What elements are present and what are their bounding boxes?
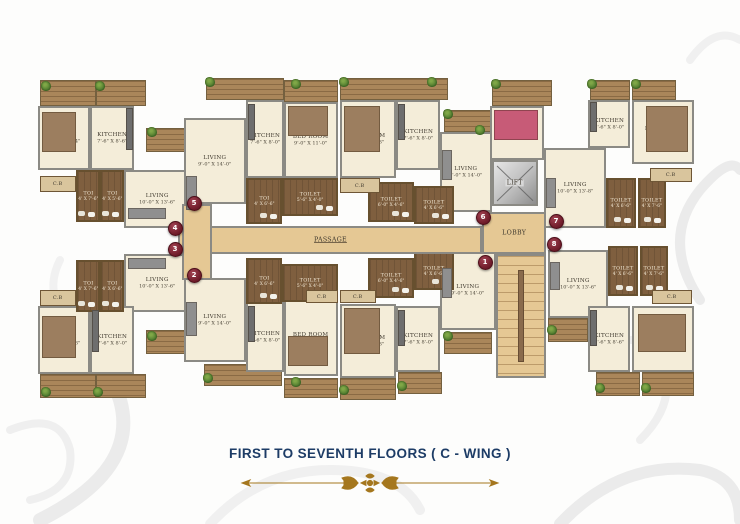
furniture xyxy=(442,150,452,180)
planter xyxy=(41,81,51,91)
cupboard-box: C.B xyxy=(650,168,692,182)
balcony-deck xyxy=(96,374,146,398)
furniture xyxy=(288,106,328,136)
planter xyxy=(427,77,437,87)
furniture xyxy=(288,336,328,366)
furniture xyxy=(128,258,166,269)
flat-marker-6: 6 xyxy=(476,210,491,225)
furniture xyxy=(92,310,99,352)
planter xyxy=(631,79,641,89)
planter xyxy=(339,77,349,87)
furniture xyxy=(398,310,405,346)
cupboard-box: C.B xyxy=(652,290,692,304)
planter xyxy=(491,79,501,89)
planter xyxy=(41,387,51,397)
flat-marker-7: 7 xyxy=(549,214,564,229)
furniture xyxy=(186,302,197,336)
planter xyxy=(147,331,157,341)
floor-plan-caption: FIRST TO SEVENTH FLOORS ( C - WING ) xyxy=(0,446,740,461)
gold-divider-ornament xyxy=(240,472,500,494)
balcony-deck xyxy=(206,78,284,100)
furniture xyxy=(248,306,255,342)
flat-marker-8: 8 xyxy=(547,237,562,252)
planter xyxy=(443,331,453,341)
passage: PASSAGE xyxy=(178,226,482,254)
furniture xyxy=(42,316,76,358)
flat-marker-4: 4 xyxy=(168,221,183,236)
furniture xyxy=(518,270,524,362)
toilet-toilet: TOILET4' X 6'-6" xyxy=(608,246,638,296)
furniture xyxy=(344,106,380,152)
furniture xyxy=(546,178,556,208)
planter xyxy=(203,373,213,383)
planter xyxy=(95,81,105,91)
planter xyxy=(205,77,215,87)
furniture xyxy=(126,108,133,150)
furniture xyxy=(398,104,405,140)
furniture xyxy=(248,104,255,140)
furniture xyxy=(344,308,380,354)
lift: LIFT xyxy=(492,160,538,206)
planter xyxy=(291,377,301,387)
planter xyxy=(339,385,349,395)
toilet-toilet: TOILET5'-6" X 4'-0" xyxy=(282,178,338,216)
furniture xyxy=(590,310,597,346)
furniture xyxy=(646,106,688,152)
balcony-deck xyxy=(492,80,552,106)
planter xyxy=(443,109,453,119)
toilet-toi: TOI4' X 7'-6" xyxy=(76,170,100,222)
flat-marker-3: 3 xyxy=(168,242,183,257)
toilet-toilet: TOILET4' X 7'-6" xyxy=(638,178,666,228)
cupboard-box: C.B xyxy=(306,290,338,303)
room-living: LIVING10'-0" X 13'-6" xyxy=(124,170,190,228)
planter xyxy=(641,383,651,393)
furniture xyxy=(638,314,686,352)
flat-marker-1: 1 xyxy=(478,255,493,270)
toilet-toi: TOI4' X 7'-6" xyxy=(76,260,100,312)
planter xyxy=(147,127,157,137)
flat-marker-5: 5 xyxy=(187,196,202,211)
furniture xyxy=(590,102,597,132)
toilet-toi: TOI4' X 5'-6" xyxy=(100,170,124,222)
lobby: LOBBY xyxy=(482,212,546,254)
toilet-toi: TOI4' X 6'-6" xyxy=(246,258,282,304)
toilet-toilet: TOILET4' X 7'-6" xyxy=(640,246,668,296)
furniture xyxy=(550,262,560,290)
furniture xyxy=(128,208,166,219)
planter xyxy=(547,325,557,335)
cupboard-box: C.B xyxy=(340,290,376,303)
cupboard-box: C.B xyxy=(340,178,380,193)
toilet-toilet: TOILET4' X 6'-6" xyxy=(606,178,636,228)
toilet-toi: TOI4' X 6'-6" xyxy=(246,178,282,224)
floor-plan: BED RM9'-0" X 11'-4"KITCHEN7'-6" X 8'-6"… xyxy=(0,0,740,440)
cupboard-box: C.B xyxy=(40,176,76,192)
planter xyxy=(291,79,301,89)
planter xyxy=(587,79,597,89)
cupboard-box: C.B xyxy=(40,290,76,306)
toilet-toi: TOI4' X 6'-6" xyxy=(100,260,124,312)
furniture xyxy=(494,110,538,140)
planter xyxy=(93,387,103,397)
flat-marker-2: 2 xyxy=(187,268,202,283)
furniture xyxy=(442,268,452,298)
planter xyxy=(475,125,485,135)
toilet-toilet: TOILET4' X 6'-6" xyxy=(414,186,454,224)
furniture xyxy=(42,112,76,152)
planter xyxy=(595,383,605,393)
planter xyxy=(397,381,407,391)
